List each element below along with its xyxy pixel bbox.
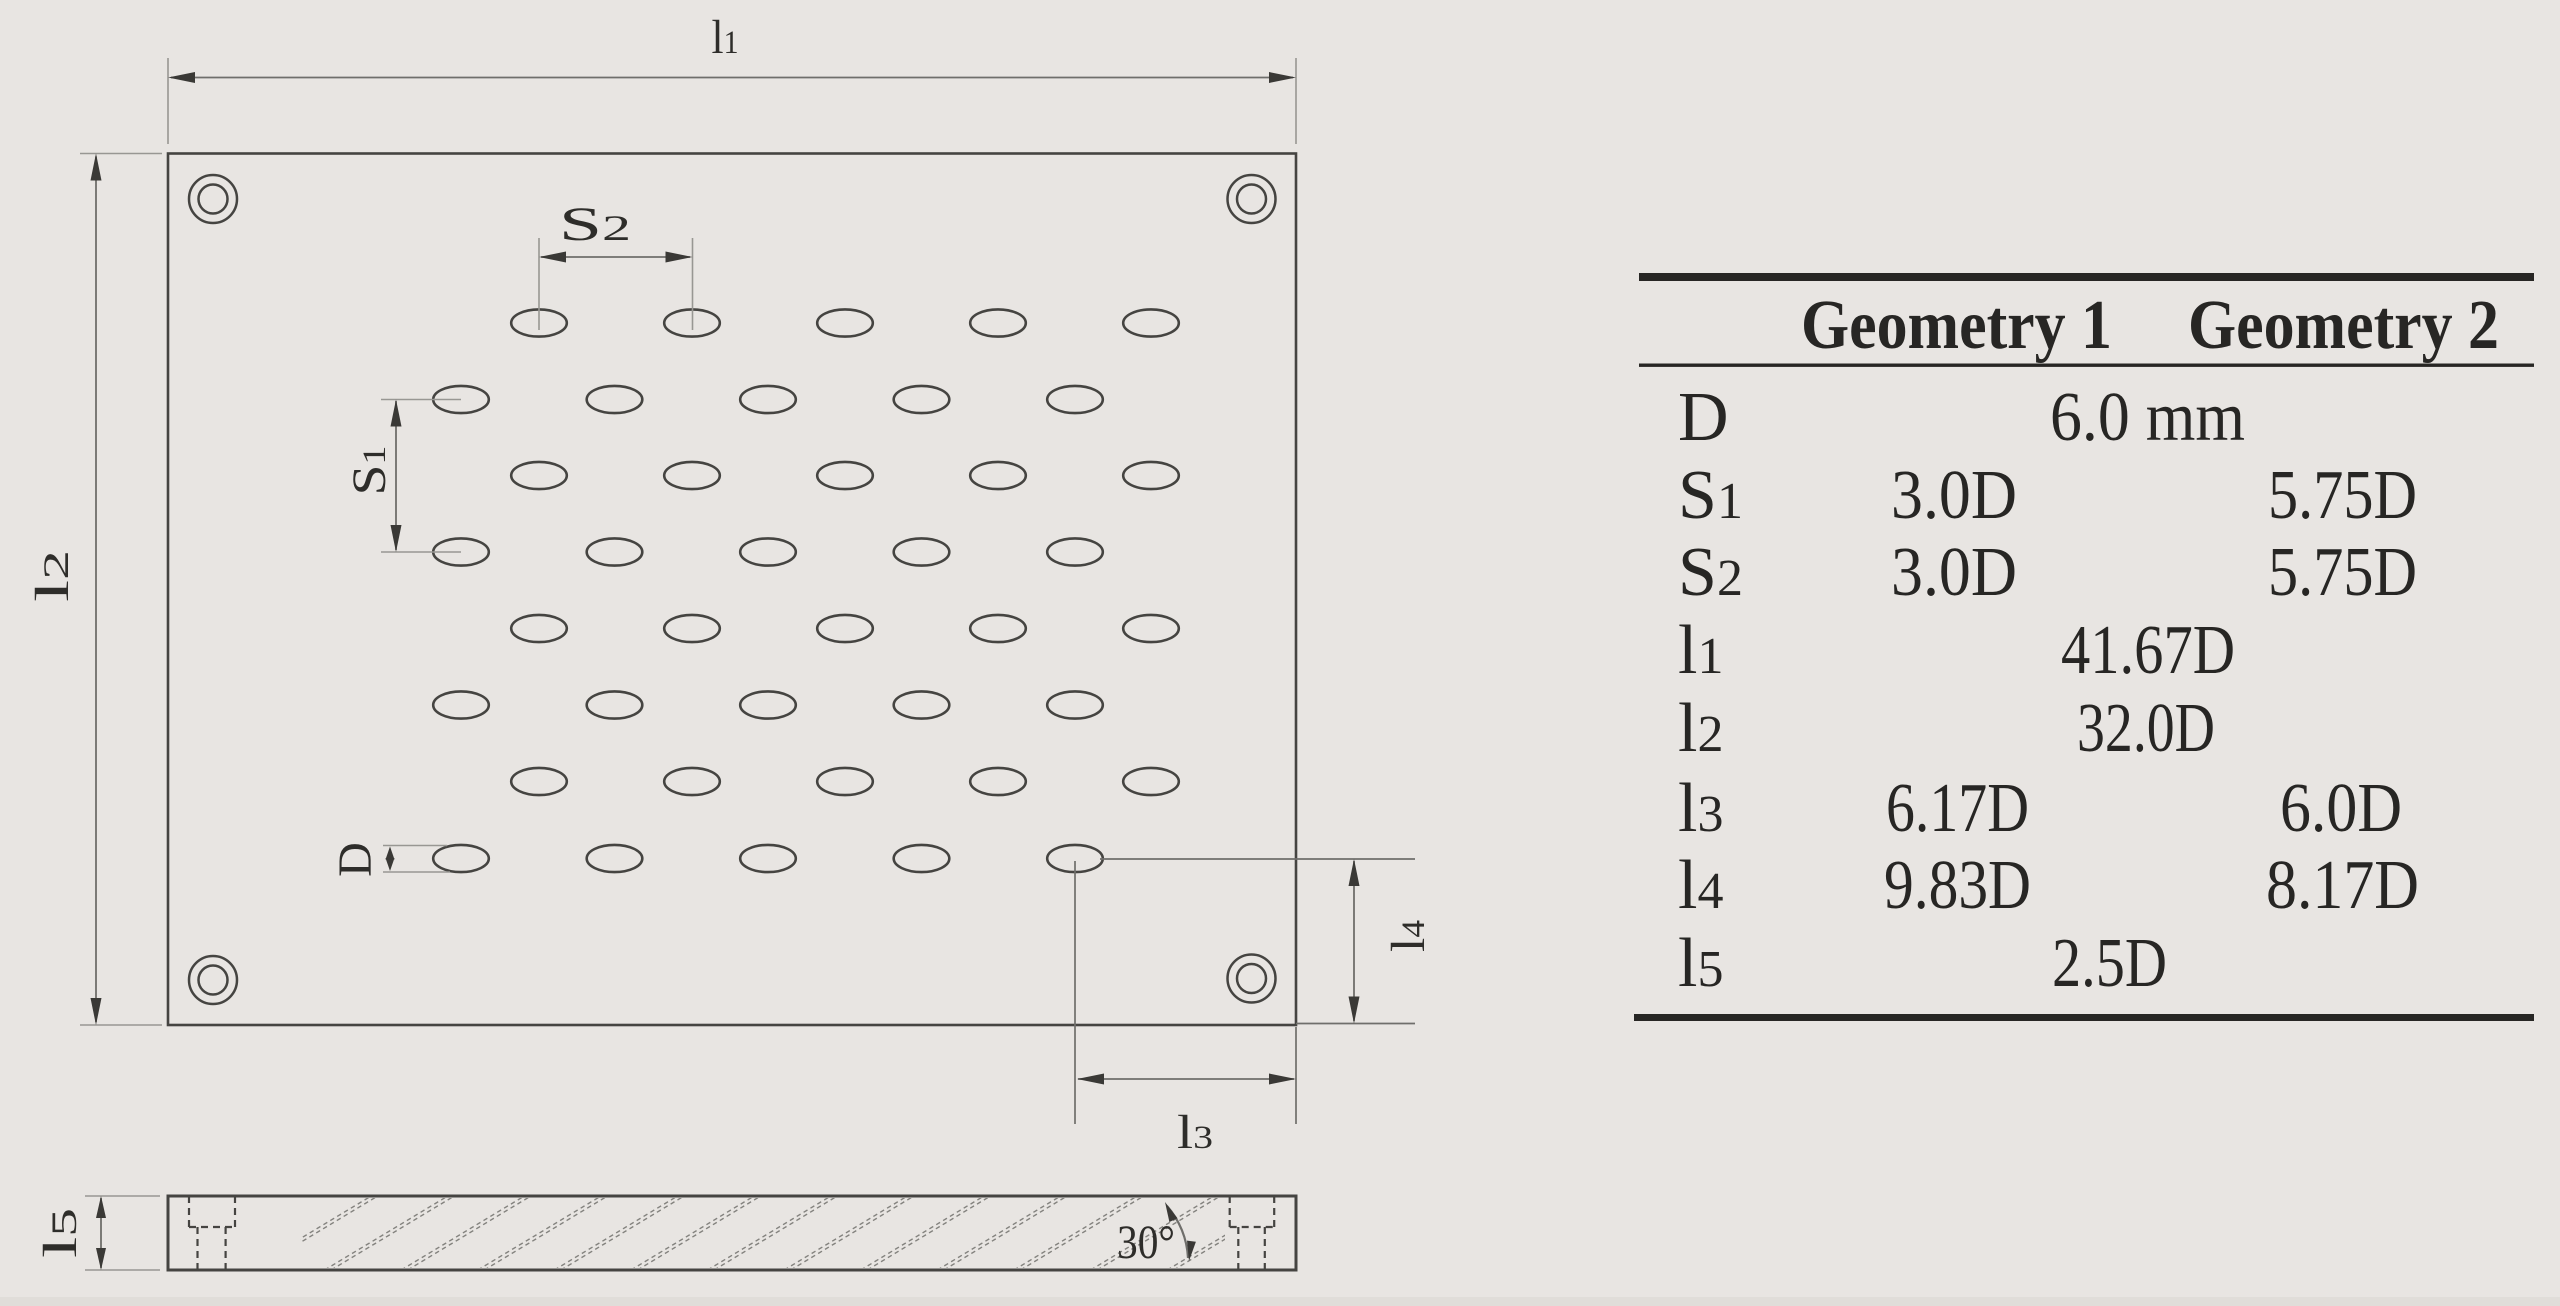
svg-text:3.0D: 3.0D xyxy=(1891,457,2017,534)
svg-text:32.0D: 32.0D xyxy=(2077,690,2215,767)
svg-text:2.5D: 2.5D xyxy=(2052,925,2167,1002)
svg-text:Geometry 1: Geometry 1 xyxy=(1801,287,2112,364)
svg-text:5.75D: 5.75D xyxy=(2268,457,2417,534)
svg-text:9.83D: 9.83D xyxy=(1884,847,2031,924)
svg-text:8.17D: 8.17D xyxy=(2266,847,2419,924)
svg-text:3.0D: 3.0D xyxy=(1891,534,2017,611)
svg-text:5.75D: 5.75D xyxy=(2268,534,2417,611)
svg-text:6.17D: 6.17D xyxy=(1886,770,2029,847)
svg-text:30°: 30° xyxy=(1117,1216,1175,1269)
svg-text:6.0D: 6.0D xyxy=(2280,770,2402,847)
svg-text:D: D xyxy=(329,842,382,877)
svg-text:6.0 mm: 6.0 mm xyxy=(2050,379,2245,456)
svg-text:D: D xyxy=(1678,379,1729,456)
svg-text:41.67D: 41.67D xyxy=(2061,612,2235,689)
svg-text:Geometry 2: Geometry 2 xyxy=(2188,287,2499,364)
